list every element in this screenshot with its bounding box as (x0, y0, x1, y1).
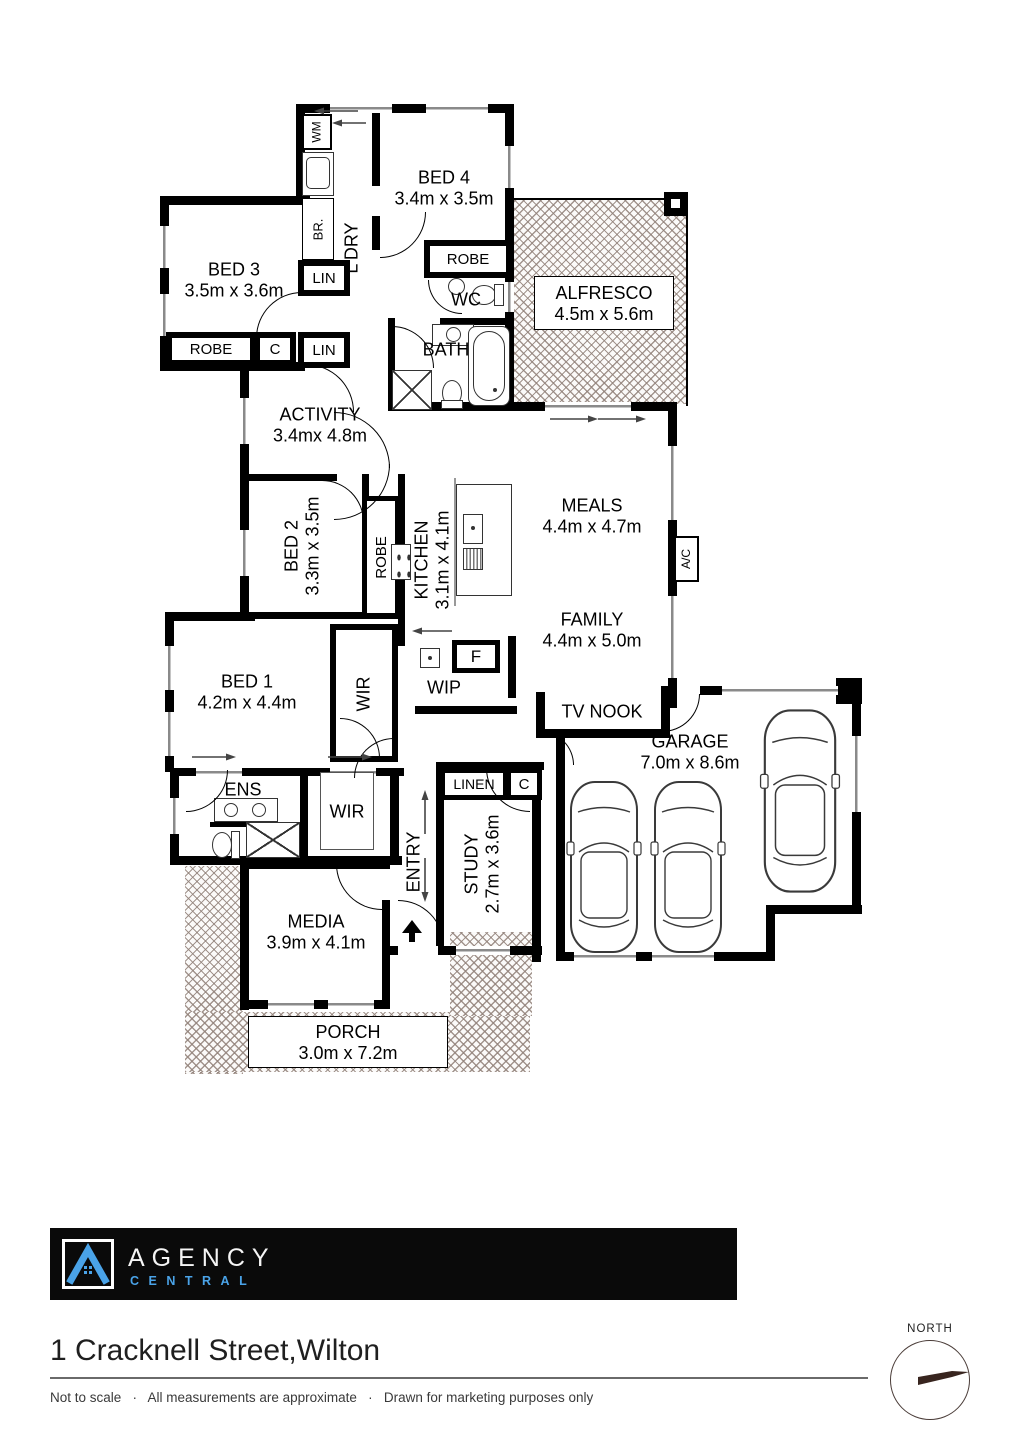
car-icon (754, 704, 846, 898)
arrow-icon (598, 414, 646, 424)
room-label-wip: WIP (427, 678, 461, 699)
window (426, 104, 488, 113)
room-label-entry: ENTRY (404, 832, 425, 893)
room-name: BED 2 (281, 496, 302, 595)
room-label-alfresco: ALFRESCO 4.5m x 5.6m (534, 276, 674, 330)
arrow-icon (550, 414, 598, 424)
wall-segment (415, 706, 517, 714)
property-address: 1 Cracknell Street,Wilton (50, 1334, 380, 1368)
room-name: BED 4 (394, 167, 493, 188)
door-arc (662, 694, 700, 732)
window (668, 596, 677, 678)
wall-segment (766, 905, 862, 914)
room-dims: 3.5m x 3.6m (184, 280, 283, 301)
alfresco-border (686, 198, 688, 406)
window (668, 446, 677, 520)
bathtub-drain (493, 388, 497, 392)
kitchen-drainer (463, 548, 483, 570)
room-label-family: FAMILY 4.4m x 5.0m (542, 609, 641, 650)
room-label-garage: GARAGE 7.0m x 8.6m (640, 731, 739, 772)
wc-toilet-tank (494, 284, 504, 306)
room-name: FAMILY (542, 609, 641, 630)
room-name: KITCHEN (411, 510, 432, 609)
ens-toilet-tank (231, 831, 240, 859)
arrow-icon (332, 118, 366, 128)
ac-unit: A/C (674, 536, 699, 582)
room-label-bed3: BED 3 3.5m x 3.6m (184, 259, 283, 300)
porch-hatch (450, 932, 532, 1016)
ac-label: A/C (680, 549, 692, 569)
room-label-tv-nook: TV NOOK (561, 702, 642, 723)
room-label-activity: ACTIVITY 3.4mx 4.8m (273, 404, 367, 445)
room-label-bath: BATH (423, 340, 470, 361)
room-dims: 7.0m x 8.6m (640, 752, 739, 773)
ens-shower (246, 822, 300, 858)
wall-segment (165, 612, 255, 621)
alfresco-post-inner (671, 199, 680, 208)
wall-segment (372, 216, 380, 250)
room-dims: 3.4m x 3.5m (394, 188, 493, 209)
window (160, 294, 169, 336)
room-dims: 3.0m x 7.2m (298, 1044, 397, 1062)
ens-basin (224, 803, 238, 817)
window (505, 282, 514, 312)
wm-label: WM (311, 121, 323, 142)
disclaimer-text: Not to scale · All measurements are appr… (50, 1390, 593, 1405)
room-name: PORCH (315, 1023, 380, 1041)
room-label-study: STUDY 2.7m x 3.6m (461, 814, 502, 913)
footer-divider (50, 1377, 868, 1379)
robe-label: ROBE (374, 536, 389, 579)
room-label-bed4: BED 4 3.4m x 3.5m (394, 167, 493, 208)
room-name: GARAGE (640, 731, 739, 752)
room-dims: 2.7m x 3.6m (482, 814, 503, 913)
room-dims: 3.4mx 4.8m (273, 425, 367, 446)
room-label-bed1: BED 1 4.2m x 4.4m (197, 671, 296, 712)
room-label-wc: WC (451, 290, 481, 311)
room-dims: 4.4m x 4.7m (542, 516, 641, 537)
room-dims: 4.4m x 5.0m (542, 630, 641, 651)
room-dims: 4.5m x 5.6m (554, 305, 653, 323)
car-icon (566, 776, 642, 958)
bathtub-inner (473, 331, 505, 401)
room-label-meals: MEALS 4.4m x 4.7m (542, 495, 641, 536)
agency-logo-mark (62, 1239, 114, 1289)
kitchen-sink-drain (471, 526, 475, 530)
laundry-tub-basin (306, 157, 330, 189)
room-dims: 3.3m x 3.5m (302, 496, 323, 595)
fridge-space: F (452, 640, 500, 673)
room-label-wir-ens: WIR (330, 802, 365, 823)
room-label-bed2: BED 2 3.3m x 3.5m (281, 496, 322, 595)
shower (392, 370, 432, 410)
wall-segment (240, 860, 249, 1010)
arrow-icon (192, 752, 236, 762)
arrow-icon (314, 106, 358, 116)
window (240, 398, 249, 444)
agency-logo-bar: AGENCY CENTRAL (50, 1228, 737, 1300)
car-icon (650, 776, 726, 958)
window (240, 530, 249, 576)
room-name: ALFRESCO (555, 284, 652, 302)
room-name: STUDY (461, 814, 482, 913)
wall-segment (668, 402, 677, 446)
arrow-icon (412, 626, 452, 636)
wall-segment (160, 196, 310, 205)
ens-toilet-bowl (212, 832, 232, 858)
arrow-icon (420, 790, 430, 834)
wall-segment (382, 900, 390, 1009)
wall-segment (300, 770, 308, 860)
broom-cupboard: BR. (302, 198, 334, 260)
window (852, 736, 861, 812)
window (165, 712, 174, 756)
north-arrow-icon (890, 1340, 974, 1420)
window (160, 226, 169, 268)
room-name: ACTIVITY (273, 404, 367, 425)
wall-segment (508, 636, 516, 698)
room-label-media: MEDIA 3.9m x 4.1m (266, 911, 365, 952)
robe-closet-bed3: ROBE (166, 332, 256, 366)
room-label-kitchen: KITCHEN 3.1m x 4.1m (411, 510, 452, 609)
door-arc (336, 864, 382, 910)
room-label-ldry: L'DRY (342, 222, 363, 273)
room-name: MEDIA (266, 911, 365, 932)
window (170, 798, 179, 834)
window (722, 686, 838, 695)
linen-lower: LIN (298, 332, 350, 368)
floorplan-page: ROBE C LIN LIN ROBE ROBE LINEN C F A/C W… (0, 0, 1024, 1449)
alfresco-border (514, 198, 688, 200)
room-name: BED 1 (197, 671, 296, 692)
window (268, 1000, 314, 1009)
door-arc (380, 212, 426, 258)
wall-segment (390, 768, 399, 860)
room-name: MEALS (542, 495, 641, 516)
washing-machine: WM (302, 114, 332, 150)
entry-arrow-icon (402, 920, 422, 944)
window (328, 1000, 374, 1009)
robe-closet-bed4: ROBE (424, 240, 512, 278)
front-door-opening (398, 946, 438, 955)
house-icon (69, 1246, 107, 1282)
agency-logo-title: AGENCY (128, 1244, 276, 1273)
sliding-door (545, 402, 631, 411)
north-label: NORTH (907, 1323, 953, 1335)
wip-sink-drain (428, 656, 432, 660)
room-label-wir-hall: WIR (354, 677, 375, 712)
arrow-icon (328, 752, 372, 762)
room-label-porch: PORCH 3.0m x 7.2m (248, 1016, 448, 1068)
window (456, 946, 510, 955)
br-label: BR. (311, 218, 324, 240)
window (505, 146, 514, 188)
wall-segment (372, 104, 380, 186)
room-dims: 3.1m x 4.1m (432, 510, 453, 609)
room-dims: 3.9m x 4.1m (266, 932, 365, 953)
cooktop (391, 544, 411, 580)
agency-logo-subtitle: CENTRAL (130, 1274, 256, 1288)
room-name: BED 3 (184, 259, 283, 280)
bath-toilet-tank (441, 400, 463, 409)
room-dims: 4.2m x 4.4m (197, 692, 296, 713)
window (165, 646, 174, 690)
room-label-ens: ENS (224, 780, 261, 801)
door-arc (486, 768, 530, 812)
ens-basin (252, 803, 266, 817)
